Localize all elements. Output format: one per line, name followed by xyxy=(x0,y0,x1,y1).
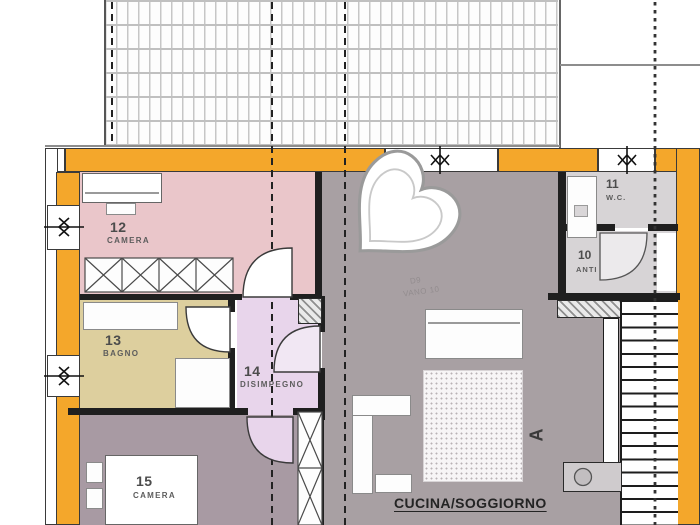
top-wall-segment-1 xyxy=(65,148,385,172)
faint-note-line1: D9 xyxy=(409,276,421,285)
top-window-2 xyxy=(598,148,655,172)
stairs-railing-wall xyxy=(603,318,619,463)
left-window-1 xyxy=(47,205,80,250)
wall-anti-stairs xyxy=(548,293,680,300)
wall-12-13 xyxy=(80,294,242,300)
room-15-name: CAMERA xyxy=(133,492,176,500)
masonry-hatch-shaft xyxy=(298,298,322,324)
room-14-name: DISIMPEGNO xyxy=(240,381,304,389)
vanity-room13 xyxy=(83,302,178,330)
room-15-number: 15 xyxy=(136,474,153,488)
wall-living-wc xyxy=(558,172,566,296)
room-13-number: 13 xyxy=(105,333,122,347)
wall-12-living xyxy=(315,172,322,300)
roof-right-edge xyxy=(559,0,561,149)
rug xyxy=(423,370,523,482)
wall-13-14-top xyxy=(228,300,235,312)
room-14-number: 14 xyxy=(244,364,261,378)
room-11-number: 11 xyxy=(606,178,619,190)
shower-room13 xyxy=(175,358,230,408)
living-room-label: CUCINA/SOGGIORNO xyxy=(394,496,547,510)
roof-left-edge xyxy=(104,0,106,147)
top-wall-segment-2 xyxy=(498,148,598,172)
sofa-top xyxy=(425,309,523,359)
floor-plan: 12 CAMERA 13 BAGNO 14 DISIMPEGNO 15 CAME… xyxy=(0,0,700,525)
room-10-number: 10 xyxy=(578,249,591,261)
wall-15-living xyxy=(316,415,324,525)
sofa-left-bottom xyxy=(375,474,412,493)
kitchen-counter xyxy=(563,462,622,492)
terrace-line xyxy=(560,64,700,66)
room-12-name: CAMERA xyxy=(107,237,150,245)
room-13-name: BAGNO xyxy=(103,350,139,358)
left-window-2 xyxy=(47,355,80,397)
bed-room12 xyxy=(82,173,162,203)
wall-13-15 xyxy=(68,408,248,415)
shower-wc xyxy=(567,176,597,238)
roof-eave-line xyxy=(45,145,560,147)
shaft-white xyxy=(657,233,677,291)
room-12-number: 12 xyxy=(110,220,127,234)
right-wall-orange xyxy=(676,148,700,525)
section-marker-a: A xyxy=(528,429,546,442)
pillow-room15-b xyxy=(86,488,103,509)
stairs xyxy=(620,300,678,525)
wall-wc-anti-right xyxy=(648,224,678,231)
pillow-room15-a xyxy=(86,462,103,483)
sofa-left-top xyxy=(352,395,411,416)
masonry-hatch-stairs xyxy=(557,300,627,318)
room-10-name: ANTI xyxy=(576,266,598,274)
bed-room15 xyxy=(105,455,198,525)
top-window-1 xyxy=(385,148,498,172)
room-11-name: W.C. xyxy=(606,194,626,202)
roof-tiles xyxy=(105,0,558,146)
nightstand-room12 xyxy=(106,203,136,215)
wall-14-living-bottom xyxy=(318,368,325,420)
